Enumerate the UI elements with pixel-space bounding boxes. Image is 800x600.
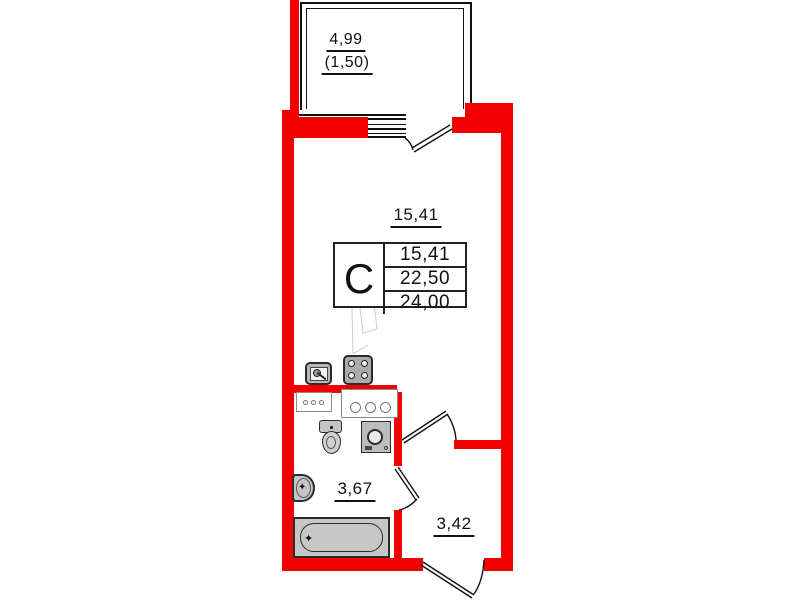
stamp-total-area: 22,50 [385, 266, 465, 290]
stove-icon [343, 355, 373, 385]
counter-with-knobs-icon [296, 392, 332, 412]
bathroom-area-label: 3,67 [334, 479, 375, 502]
stamp-total-area-with-balcony: 24,00 [385, 290, 465, 314]
kitchen-sink-icon [305, 362, 332, 385]
stamp-living-area: 15,41 [385, 244, 465, 266]
washing-machine-icon [361, 421, 391, 453]
hallway-area-label: 3,42 [433, 514, 474, 537]
kitchen-counter-icon [341, 389, 398, 418]
apartment-stamp: С 15,41 22,50 24,00 [333, 242, 467, 308]
studio-area-label: 15,41 [390, 205, 441, 228]
room-hall-door [402, 411, 456, 443]
stamp-letter: С [335, 244, 385, 314]
entry-door [421, 560, 484, 598]
bathtub-icon: ✦ [293, 517, 390, 558]
floor-plan: 4,99 (1,50) [0, 0, 800, 600]
bathroom-door [395, 467, 419, 510]
balcony-door [405, 125, 452, 152]
